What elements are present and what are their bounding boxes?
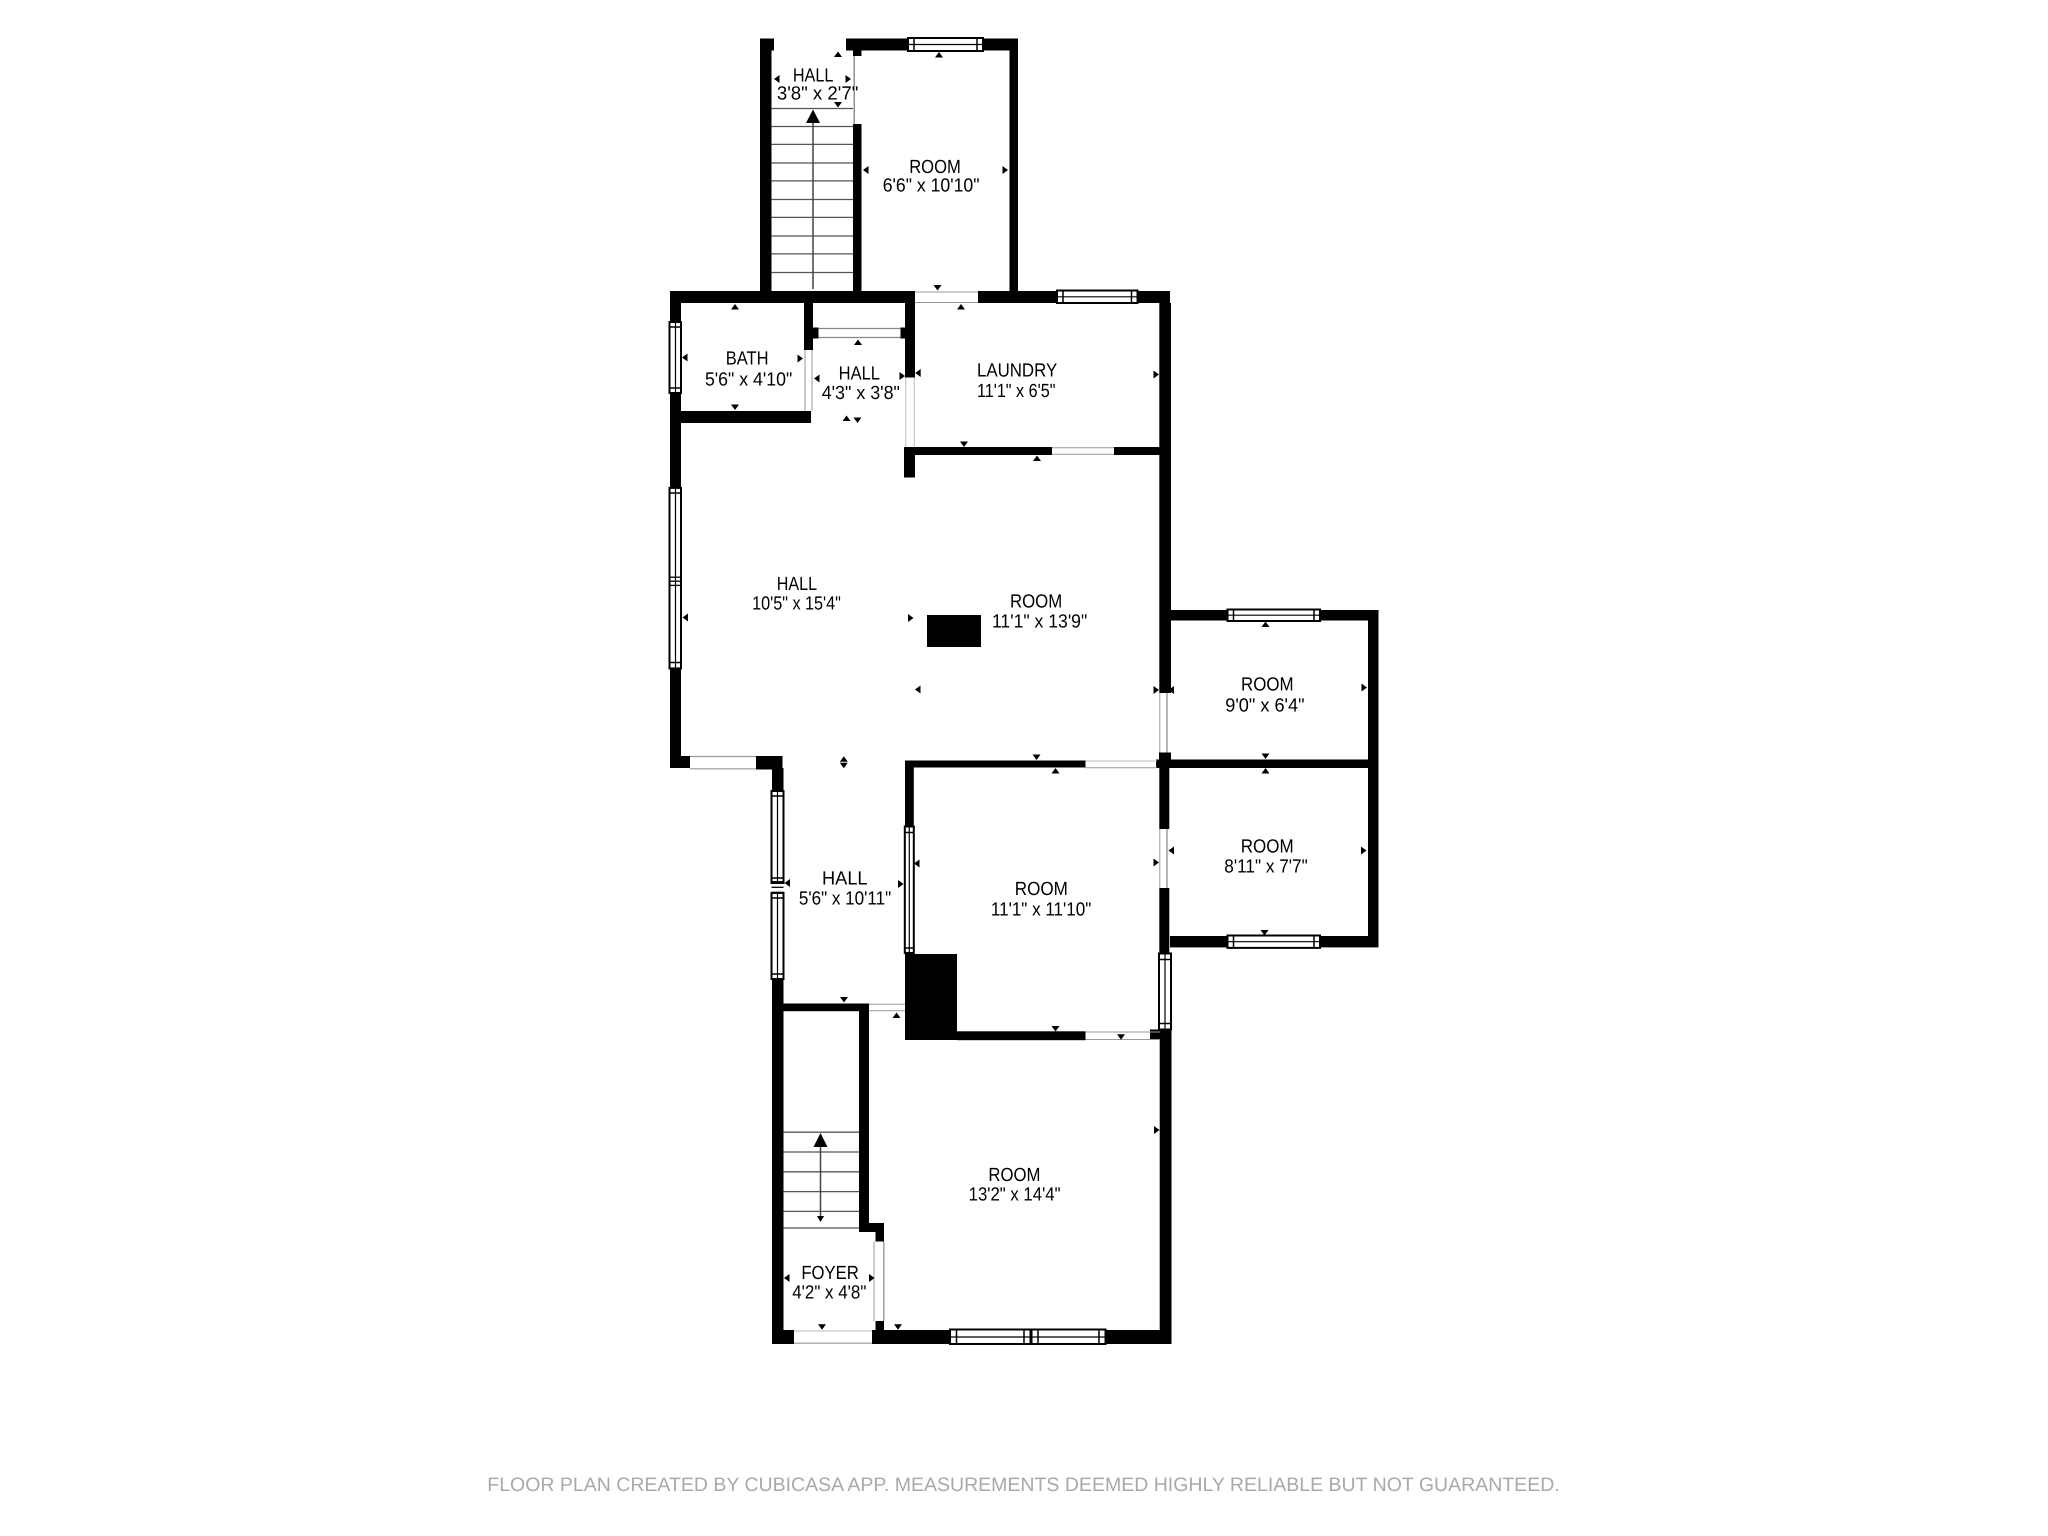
svg-text:4'2" x 4'8": 4'2" x 4'8" [792,1283,866,1304]
svg-text:ROOM: ROOM [988,1165,1040,1186]
svg-text:FOYER: FOYER [801,1263,859,1284]
svg-text:6'6" x 10'10": 6'6" x 10'10" [883,176,980,197]
svg-text:13'2" x 14'4": 13'2" x 14'4" [969,1184,1061,1205]
svg-text:ROOM: ROOM [1015,879,1068,900]
svg-text:HALL: HALL [839,364,880,385]
svg-text:ROOM: ROOM [1241,675,1294,696]
svg-text:FLOOR PLAN CREATED BY CUBICASA: FLOOR PLAN CREATED BY CUBICASA APP. MEAS… [487,1474,1559,1496]
svg-text:11'1" x 13'9": 11'1" x 13'9" [992,612,1087,633]
svg-text:5'6" x 10'11": 5'6" x 10'11" [799,888,891,909]
svg-text:10'5" x 15'4": 10'5" x 15'4" [752,594,841,615]
svg-text:LAUNDRY: LAUNDRY [977,360,1057,381]
svg-text:11'1" x 6'5": 11'1" x 6'5" [977,381,1056,402]
svg-text:3'8" x 2'7": 3'8" x 2'7" [777,84,859,105]
svg-text:11'1" x 11'10": 11'1" x 11'10" [991,900,1091,921]
svg-text:8'11" x 7'7": 8'11" x 7'7" [1224,857,1307,878]
svg-text:9'0" x 6'4": 9'0" x 6'4" [1225,696,1304,717]
svg-text:HALL: HALL [822,869,868,890]
svg-text:BATH: BATH [726,349,769,370]
svg-text:ROOM: ROOM [1010,592,1062,613]
svg-text:5'6" x 4'10": 5'6" x 4'10" [705,370,792,391]
svg-text:ROOM: ROOM [1241,837,1294,858]
svg-text:HALL: HALL [777,574,817,595]
svg-text:4'3" x 3'8": 4'3" x 3'8" [822,383,900,404]
